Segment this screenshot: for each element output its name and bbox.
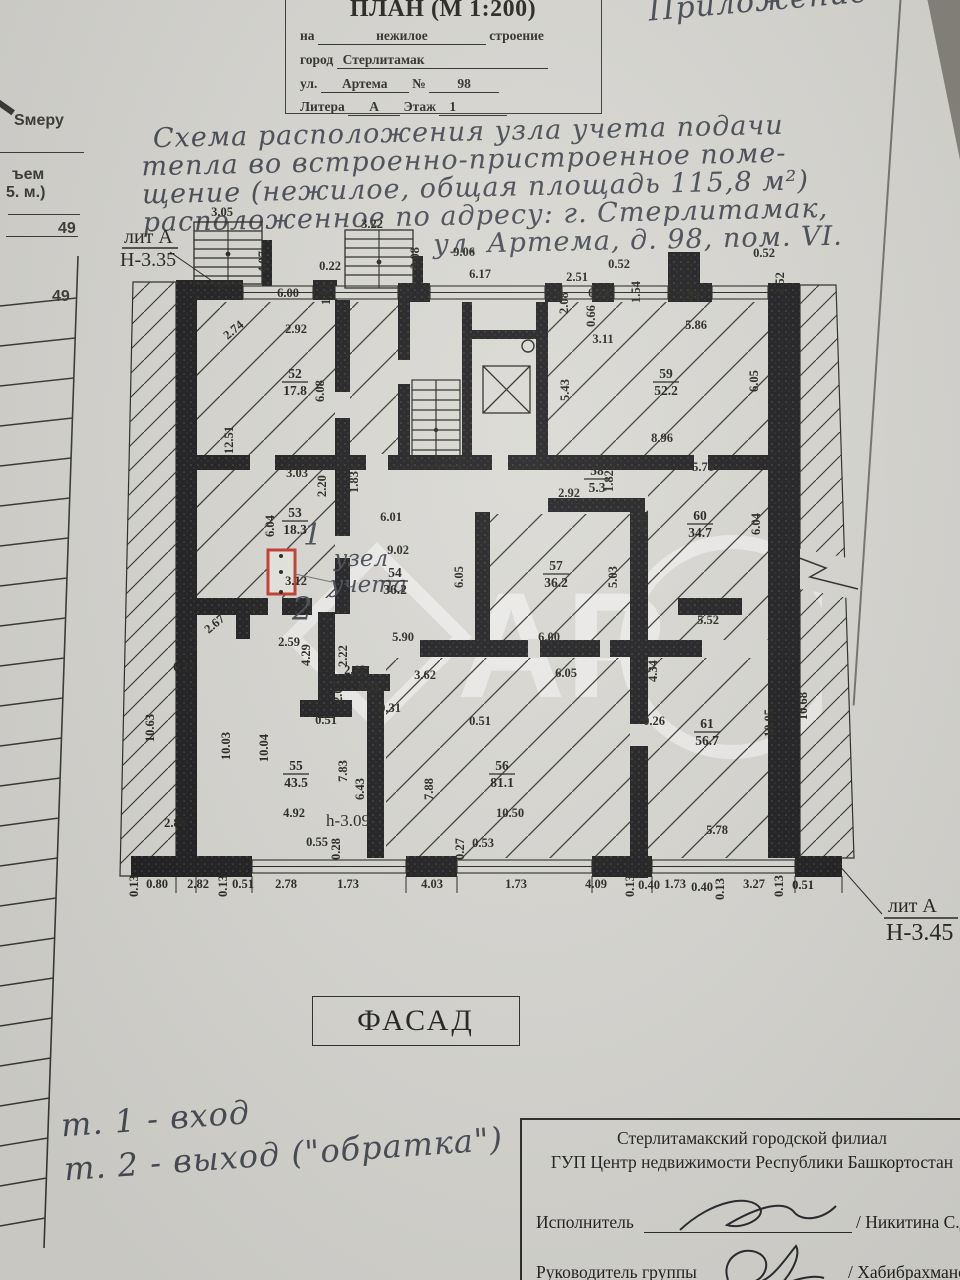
room-area: 81.1 [490,775,514,790]
room-number: 56 [495,758,509,773]
org-line-1: Стерлитамакский городской филиал [522,1128,960,1149]
svg-text:лит А: лит А [124,226,173,248]
dimension-label: 10.03 [219,732,233,760]
dimension-label: 6.04 [749,512,763,535]
window-icon [712,286,768,299]
margin-text: Ѕмеру [14,112,64,130]
dimension-label: 0.13 [127,875,141,897]
dimension-label: 0.80 [146,877,168,891]
form-value-number: 98 [429,76,499,93]
form-value-street: Артема [321,76,409,93]
dimension-label: 1.83 [347,471,361,493]
margin-text: 5. м.) [6,184,45,202]
dimension-label: 5.99 [678,288,700,302]
svg-text:Н-3.45: Н-3.45 [886,920,953,946]
form-value-building: нежилое [318,28,486,45]
dimension-label: 1.82 [602,470,616,492]
margin-text: ъем [12,166,44,184]
dimension-label: 1.52 [319,283,333,305]
manager-name: / Хабибрахманова А. [848,1262,960,1280]
room-number: 52 [288,366,302,381]
executor-signature [672,1192,842,1237]
room-number: 59 [659,366,673,381]
stairs-core-icon [412,380,460,466]
room-number: 54 [388,565,402,580]
dimension-label: 5.86 [685,318,707,332]
dimension-label: 0.52 [753,246,775,260]
dimension-label: 7.83 [336,760,350,782]
footer-block: Стерлитамакский городской филиал ГУП Цен… [520,1118,960,1280]
dimension-label: 0.53 [472,836,494,850]
dimension-label: 2.12 [344,663,366,677]
room-area: 56.7 [695,733,719,748]
dimension-label: 1.73 [664,877,686,891]
form-value-city: Стерлитамак [337,52,548,69]
photo-background-corner [910,0,960,160]
dimension-label: 2.92 [285,322,307,336]
dimension-label: 2.16 [186,629,200,651]
floor-plan: 1 2 узел учета лит А Н-3.35 лит А Н-3.45… [90,205,960,960]
executor-label: Исполнитель [536,1212,634,1233]
dimension-label: 7.88 [422,778,436,800]
dimension-label: 2.67 [202,612,228,637]
handwritten-legend: т. 1 - вход т. 2 - выход ("обратка") [59,1073,504,1191]
dimension-label: 2.82 [187,877,209,891]
window-icon [252,860,406,873]
dimension-label: 2.08 [557,292,571,314]
dimension-label: 0.55 [306,835,328,849]
dimension-label: 4.92 [283,806,305,820]
dimension-label: 4.03 [421,877,443,891]
stairs-top-center-icon [345,230,413,288]
dimension-label: 3.05 [211,205,233,219]
room-area: 18.3 [283,522,307,537]
dimension-label: 6.01 [380,510,402,524]
dimension-label: 9.06 [453,245,475,259]
room-area: 43.5 [284,775,308,790]
room-number: 57 [549,558,563,573]
dimension-label: 9.02 [387,543,409,557]
margin-text: 49 [58,220,76,238]
dimension-label: 5.03 [606,566,620,588]
dimension-label: 0.27 [453,838,467,860]
stairs-top-left-icon [194,222,262,284]
dimension-label: 0.13 [216,875,230,897]
dimension-label: 0.24 [588,286,611,300]
litera-bottom-callout: лит А Н-3.45 [838,864,958,946]
dimension-label: 0.51 [469,714,491,728]
dimension-label: 0.22 [319,259,341,273]
dimension-label: 6.43 [353,778,367,800]
dimension-label: 4.34 [646,659,660,682]
svg-text:Н-3.35: Н-3.35 [120,249,176,271]
dimension-label: 2.51 [566,270,588,284]
dimension-label: 6.02 [637,510,651,532]
window-icon [457,860,592,873]
form-value-litera: А [348,99,400,116]
corner-handwritten-note: Приложение [647,0,870,29]
dimension-label: 2.80 [164,816,186,830]
form-row-city: город Стерлитамак [300,52,548,69]
dimension-label: 2.59 [278,635,300,649]
dimension-label: 6.05 [555,666,577,680]
dimension-label: 0.13 [173,660,195,674]
window-icon [430,286,545,299]
margin-rule [8,214,80,215]
unit-label-line1: узел [333,546,388,572]
dimension-label: 2.07 [331,681,345,703]
dimension-label: 0.31 [379,701,401,715]
exterior-strip-left [120,282,176,876]
height-mark: h-3.09 [326,811,370,830]
form-value-floor: 1 [439,99,507,116]
dimension-label: 0.26 [643,714,665,728]
dimension-label: 3.03 [286,466,308,480]
room-area: 17.8 [283,383,307,398]
facade-box: ФАСАД [312,996,520,1046]
dimension-label: 10.50 [496,806,524,820]
dimension-label: 0.66 [584,305,598,327]
dimension-label: 6.00 [277,286,299,300]
room-area: 36.2 [544,575,568,590]
scanned-floor-plan-document: Ѕмеруъем5. м.)4949 ПЛАН (М 1:200) на неж… [0,0,960,1280]
dimension-label: 3.27 [743,877,765,891]
dimension-label: 0.51 [232,877,254,891]
dimension-label: 8.96 [651,431,673,445]
dimension-label: 10.04 [257,733,271,762]
dimension-label: 0.51 [315,713,337,727]
underlying-page-mark [0,99,15,115]
manager-signature [718,1240,828,1280]
room-number: 60 [693,508,707,523]
dimension-label: 10.68 [796,692,810,720]
margin-rule [0,152,84,153]
dimension-label: 10.05 [762,709,776,737]
margin-text: 49 [52,288,70,306]
dimension-label: 2.78 [275,877,297,891]
dimension-label: 1.54 [629,280,643,303]
exterior-strip-right [794,285,858,858]
dimension-label: 3.11 [592,332,613,346]
room-area: 34.7 [688,525,712,540]
manager-label: Руководитель группы [536,1262,697,1280]
room-number: 53 [288,505,302,520]
dimension-label: 0.13 [623,875,637,897]
room-number: 55 [289,758,303,773]
dimension-label: 2.92 [558,486,580,500]
room-area: 52.2 [654,383,678,398]
dimension-label: 5.78 [706,823,728,837]
dimension-label: 0.40 [691,880,713,894]
dimension-label: 6.05 [452,566,466,588]
dimension-label: 0.13 [772,875,786,897]
facade-label: ФАСАД [357,1004,475,1038]
dimension-label: 6.08 [313,380,327,402]
dimension-label: 4.09 [585,877,607,891]
dimension-label: 0.31 [358,680,380,694]
svg-text:лит А: лит А [888,895,937,917]
form-row-litera: Литера А Этаж 1 [300,99,507,116]
form-row-building: на нежилое строение [300,28,544,45]
dimension-label: 6.00 [538,630,560,644]
room-area: 36.2 [383,582,407,597]
dimension-label: 6.05 [747,370,761,392]
dimension-label: 3.12 [285,574,307,588]
dimension-label: 12.51 [222,426,236,454]
dimension-label: 6.17 [469,267,491,281]
executor-name: / Никитина С.Д./ [856,1212,960,1233]
dimension-label: 1.73 [505,877,527,891]
form-row-street: ул. Артема № 98 [300,76,499,93]
dimension-label: 3.62 [414,668,436,682]
dimension-label: 6.04 [263,514,277,537]
dimension-label: 5.76 [692,460,714,474]
dimension-label: 3.08 [408,247,422,269]
org-line-2: ГУП Центр недвижимости Республики Башкор… [522,1152,960,1173]
dimension-label: 4.29 [299,644,313,666]
room-number: 61 [700,716,714,731]
dimension-label: 1.73 [337,877,359,891]
dimension-label: 10.63 [143,714,157,742]
dimension-label: 0.51 [792,878,814,892]
dimension-label: 5.90 [392,630,414,644]
elevator-icon [483,366,530,413]
dimension-label: 5.43 [558,379,572,401]
dimension-label: 0.52 [608,257,630,271]
dimension-label: 0.13 [713,878,727,900]
dimension-label: 1.52 [773,272,787,294]
circle-symbol [522,340,534,352]
dimension-label: 0.40 [638,878,660,892]
dimension-label: 0.28 [329,838,343,860]
dimension-label: 5.52 [697,613,719,627]
dimension-label: 2.20 [315,475,329,497]
plan-title: ПЛАН (М 1:200) [298,0,588,23]
point-2-mark: 2 [291,590,312,628]
dimension-label: 3.22 [361,217,383,231]
dimension-label: 4.07 [256,251,270,273]
window-icon [652,860,795,873]
